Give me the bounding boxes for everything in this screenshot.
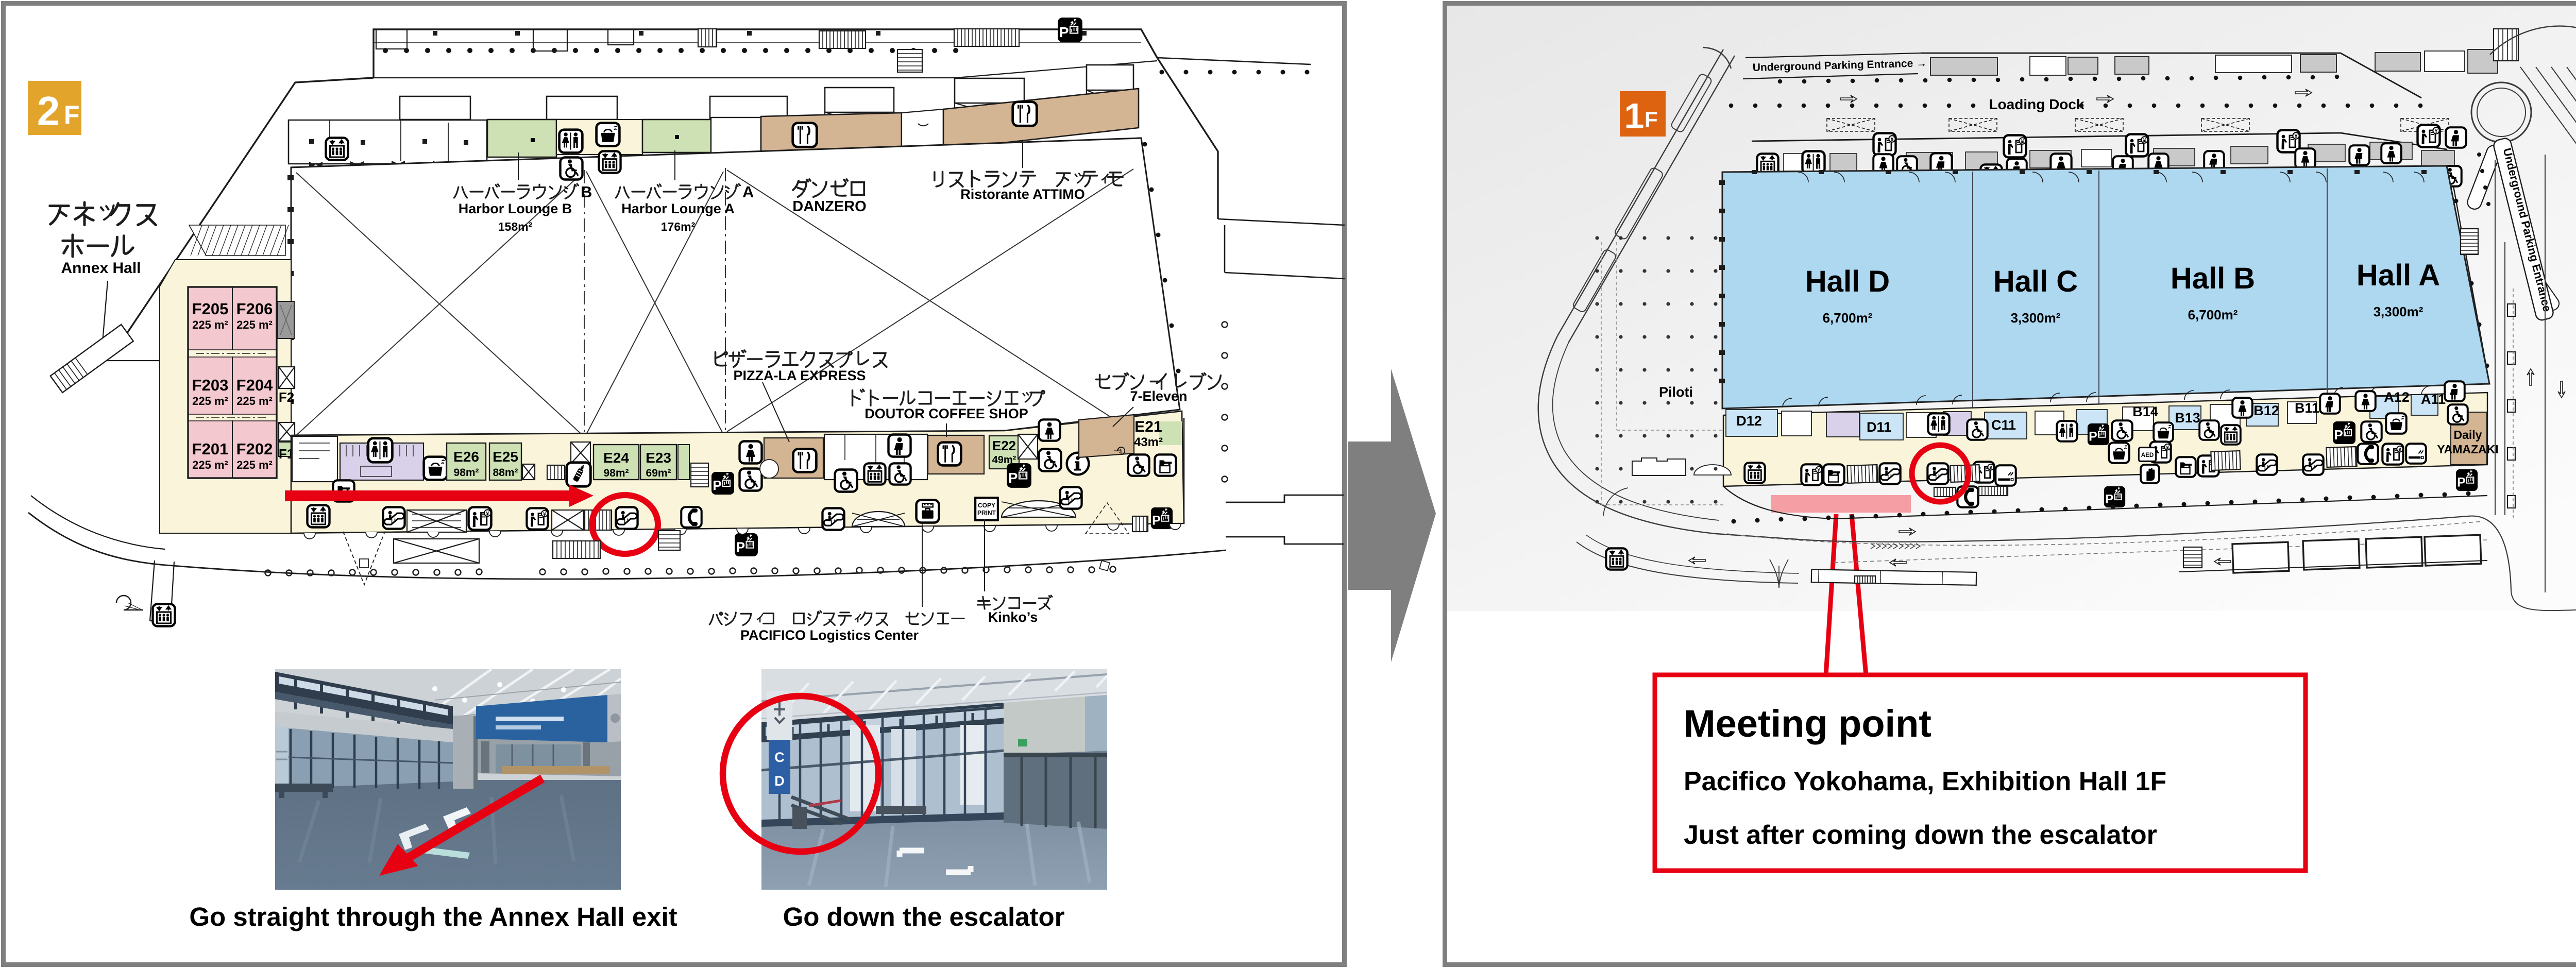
svg-text:88m²: 88m² [493, 467, 518, 479]
svg-text:Hall C: Hall C [1993, 265, 2078, 298]
svg-text:PACIFICO Logistics Center: PACIFICO Logistics Center [740, 627, 919, 643]
svg-text:2: 2 [37, 88, 60, 134]
svg-text:Piloti: Piloti [1659, 384, 1693, 400]
svg-text:E22: E22 [992, 438, 1016, 453]
svg-text:Daily: Daily [2454, 428, 2482, 441]
svg-text:98m²: 98m² [453, 467, 479, 479]
svg-text:225 m²: 225 m² [192, 458, 228, 471]
svg-text:F206: F206 [236, 300, 273, 318]
svg-text:Just after coming down the esc: Just after coming down the escalator [1684, 820, 2157, 850]
svg-text:D11: D11 [1867, 419, 1891, 435]
svg-text:3,300m²: 3,300m² [2374, 304, 2424, 319]
svg-text:Go straight through the Annex: Go straight through the Annex Hall exit [189, 902, 677, 931]
svg-text:Pacifico Yokohama, Exhibition: Pacifico Yokohama, Exhibition Hall 1F [1684, 767, 2166, 796]
svg-text:PIZZA-LA EXPRESS: PIZZA-LA EXPRESS [733, 368, 866, 383]
svg-text:B12: B12 [2253, 403, 2279, 418]
svg-text:D12: D12 [1736, 413, 1762, 429]
svg-text:225 m²: 225 m² [192, 318, 228, 331]
svg-text:E21: E21 [1134, 418, 1162, 435]
svg-text:Loading Dock: Loading Dock [1989, 96, 2084, 112]
svg-text:Hall D: Hall D [1805, 265, 1890, 298]
svg-text:A11: A11 [2421, 392, 2446, 407]
svg-text:Harbor Lounge A: Harbor Lounge A [621, 201, 735, 216]
svg-text:F201: F201 [192, 440, 229, 458]
svg-text:1: 1 [1624, 96, 1645, 136]
svg-text:98m²: 98m² [603, 467, 629, 479]
svg-text:F: F [1645, 107, 1658, 131]
svg-text:158m²: 158m² [498, 220, 533, 233]
svg-text:Annex Hall: Annex Hall [61, 260, 141, 277]
svg-text:Kinko’s: Kinko’s [988, 609, 1038, 625]
svg-text:3,300m²: 3,300m² [2011, 310, 2061, 326]
svg-text:F202: F202 [236, 440, 273, 458]
svg-text:F204: F204 [236, 376, 273, 394]
svg-text:YAMAZAKI: YAMAZAKI [2437, 443, 2498, 456]
svg-text:Hall A: Hall A [2357, 259, 2440, 292]
svg-text:B13: B13 [2175, 410, 2200, 426]
svg-text:Ristorante ATTIMO: Ristorante ATTIMO [960, 186, 1085, 202]
svg-text:E26: E26 [453, 449, 479, 465]
svg-text:225 m²: 225 m² [236, 458, 273, 471]
svg-text:6,700m²: 6,700m² [2188, 307, 2238, 322]
svg-text:F2: F2 [279, 389, 294, 405]
svg-text:DOUTOR COFFEE SHOP: DOUTOR COFFEE SHOP [865, 406, 1028, 421]
svg-text:C11: C11 [1991, 417, 2016, 433]
svg-text:B: B [581, 183, 592, 201]
svg-text:E25: E25 [493, 449, 518, 465]
svg-text:F205: F205 [192, 300, 229, 318]
svg-text:225 m²: 225 m² [192, 395, 228, 407]
svg-text:B14: B14 [2132, 404, 2158, 419]
svg-text:225 m²: 225 m² [236, 395, 273, 407]
svg-text:Meeting point: Meeting point [1684, 702, 1931, 745]
svg-text:Hall B: Hall B [2171, 262, 2255, 295]
svg-text:A12: A12 [2384, 389, 2410, 405]
svg-text:6,700m²: 6,700m² [1823, 310, 1873, 326]
svg-text:F203: F203 [192, 376, 229, 394]
svg-text:7-Eleven: 7-Eleven [1130, 388, 1187, 404]
svg-text:E23: E23 [646, 450, 671, 466]
svg-text:C: C [774, 750, 785, 765]
svg-text:176m²: 176m² [661, 220, 696, 233]
svg-text:E24: E24 [603, 450, 629, 466]
svg-text:69m²: 69m² [646, 467, 671, 479]
svg-text:43m²: 43m² [1134, 435, 1163, 449]
svg-text:DANZERO: DANZERO [792, 198, 866, 215]
svg-text:Go down the escalator: Go down the escalator [783, 902, 1065, 931]
svg-text:F: F [64, 100, 80, 129]
svg-text:225 m²: 225 m² [236, 318, 273, 331]
svg-text:Harbor Lounge B: Harbor Lounge B [459, 201, 572, 216]
svg-text:D: D [774, 773, 785, 789]
svg-text:A: A [742, 183, 754, 201]
svg-text:B11: B11 [2295, 400, 2319, 416]
